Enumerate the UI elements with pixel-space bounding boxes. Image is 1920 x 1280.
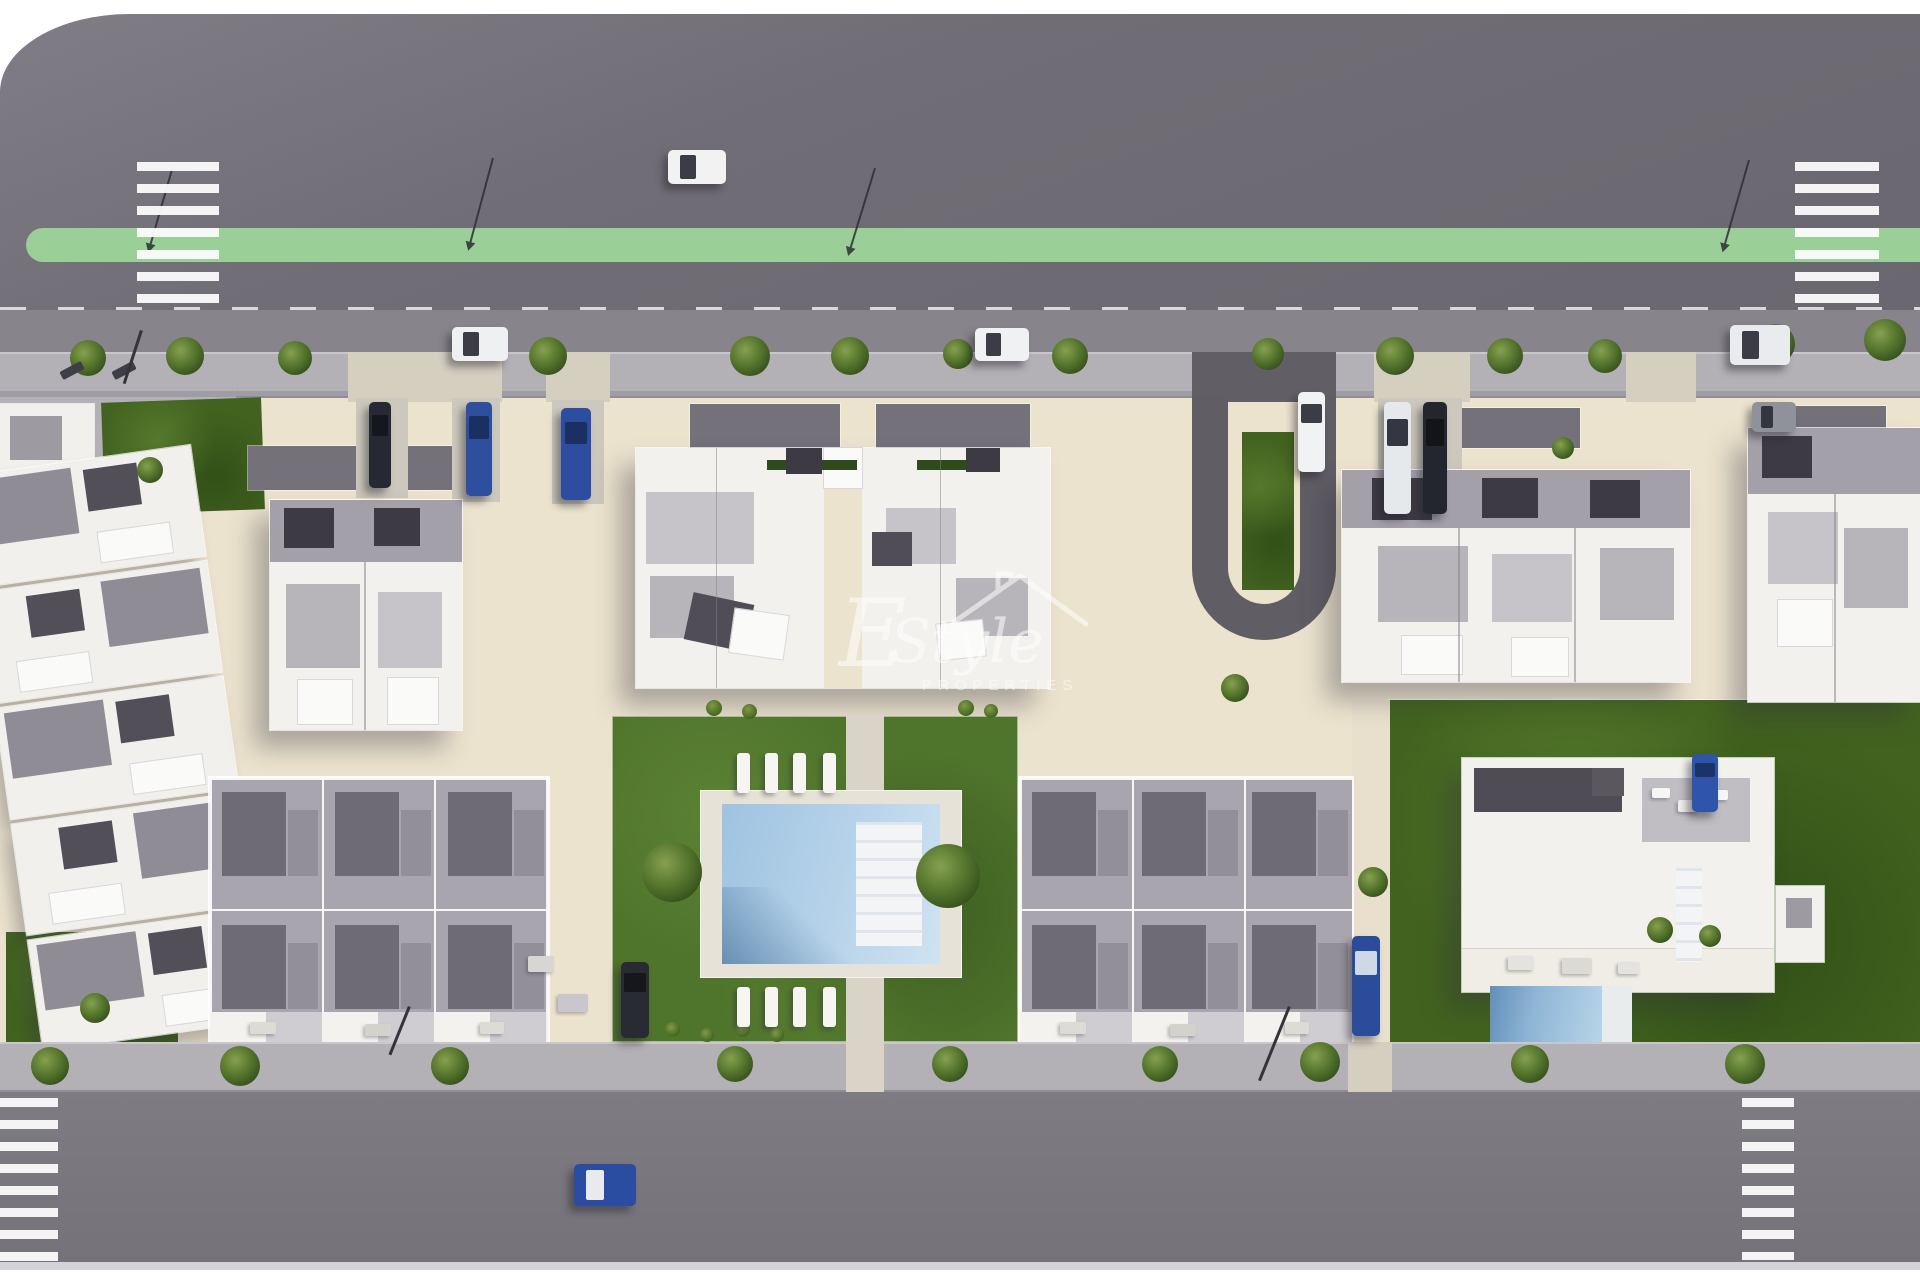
sprite-layer (0, 0, 1920, 1280)
shrub (665, 1022, 680, 1037)
car (369, 402, 391, 488)
tree (831, 337, 869, 375)
patio-furniture (1562, 958, 1592, 974)
sun-lounger (823, 987, 836, 1027)
car (1298, 392, 1325, 472)
car (1423, 402, 1447, 514)
sun-lounger (793, 987, 806, 1027)
street-light (389, 1006, 411, 1055)
car-windshield (1742, 331, 1759, 360)
shrub (958, 700, 974, 716)
sun-lounger (765, 753, 778, 793)
patio-furniture (1618, 962, 1640, 974)
car (1384, 402, 1411, 514)
tree (431, 1047, 469, 1085)
tree (137, 457, 163, 483)
car-windshield (1695, 763, 1715, 777)
car (975, 328, 1029, 361)
tree (166, 337, 204, 375)
shrub (742, 704, 757, 719)
patio-furniture (1508, 956, 1534, 970)
tree (278, 341, 312, 375)
car (574, 1164, 636, 1206)
sun-lounger (737, 987, 750, 1027)
street-light (1258, 1006, 1291, 1081)
car (452, 327, 508, 361)
car-windshield (463, 332, 479, 356)
patio-furniture (1170, 1024, 1196, 1036)
patio-furniture (365, 1024, 391, 1036)
patio-furniture (250, 1022, 276, 1034)
patio-furniture (1652, 788, 1670, 798)
tree (1300, 1042, 1340, 1082)
tree (1221, 674, 1249, 702)
car-windshield (680, 155, 696, 179)
shrub (706, 700, 722, 716)
car (1752, 402, 1796, 432)
patio-furniture (1060, 1022, 1086, 1034)
tree (1725, 1044, 1765, 1084)
car-windshield (372, 415, 389, 436)
tree (80, 993, 110, 1023)
car-windshield (1426, 419, 1444, 446)
sun-lounger (765, 987, 778, 1027)
car-windshield (1761, 406, 1773, 428)
car-windshield (565, 422, 588, 444)
car (621, 962, 649, 1038)
tree (529, 337, 567, 375)
tree (220, 1046, 260, 1086)
car-windshield (1355, 951, 1376, 975)
tree (1699, 925, 1721, 947)
tree (1588, 339, 1622, 373)
car (466, 402, 492, 496)
car-windshield (1301, 404, 1322, 423)
tree (730, 336, 770, 376)
tree (943, 339, 973, 369)
tree (1376, 337, 1414, 375)
shrub (770, 1028, 784, 1042)
car (668, 150, 726, 184)
tree (1511, 1045, 1549, 1083)
car (1692, 754, 1718, 812)
car-windshield (624, 973, 645, 991)
tree (916, 844, 980, 908)
patio-furniture (528, 956, 554, 972)
sun-lounger (823, 753, 836, 793)
car-windshield (986, 333, 1001, 357)
shrub (984, 704, 998, 718)
tree (1864, 319, 1906, 361)
tree (932, 1046, 968, 1082)
tree (1487, 338, 1523, 374)
car-windshield (586, 1170, 603, 1200)
street-light (123, 330, 143, 384)
site-plan-render: E Style PROPERTIES (0, 0, 1920, 1280)
patio-furniture (558, 994, 588, 1012)
car-windshield (1387, 419, 1408, 446)
shrub (700, 1028, 714, 1042)
tree (1052, 338, 1088, 374)
patio-furniture (1285, 1022, 1309, 1034)
car (561, 408, 591, 500)
sun-lounger (793, 753, 806, 793)
tree (1142, 1046, 1178, 1082)
tree (1647, 917, 1673, 943)
car (1352, 936, 1380, 1036)
tree (1358, 867, 1388, 897)
tree (1552, 437, 1574, 459)
tree (1252, 338, 1284, 370)
car-windshield (469, 416, 489, 439)
patio-furniture (480, 1022, 504, 1034)
tree (31, 1047, 69, 1085)
tree (717, 1046, 753, 1082)
car (1730, 325, 1790, 365)
sun-lounger (737, 753, 750, 793)
tree (642, 842, 702, 902)
